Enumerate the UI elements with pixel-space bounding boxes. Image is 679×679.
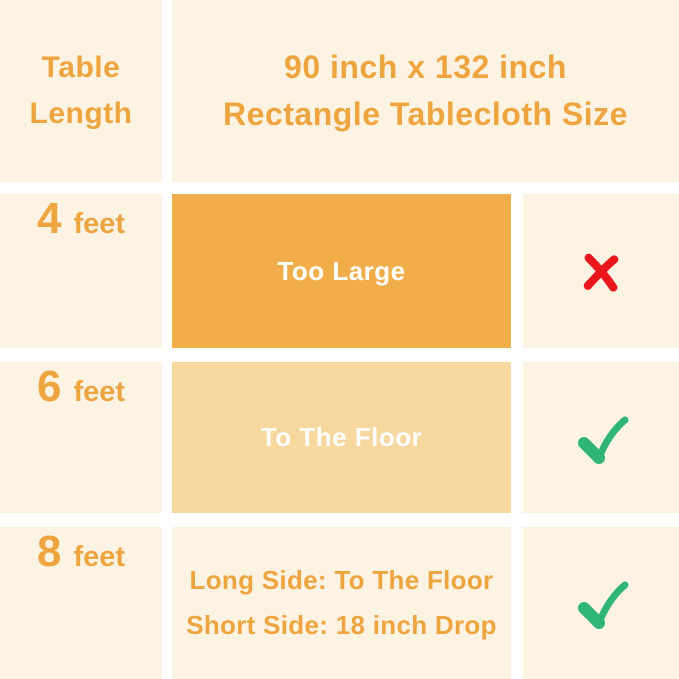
check-mark-icon [570,574,632,632]
row-8ft-fit-line2: Short Side: 18 inch Drop [186,603,497,648]
row-6ft-length-unit: feet [73,376,125,409]
header-table-length: Table Length [0,0,162,182]
row-8ft-fit-cell: Long Side: To The Floor Short Side: 18 i… [172,527,511,679]
row-6ft-fit-text: To The Floor [261,422,423,453]
chart-title-line2: Rectangle Tablecloth Size [223,91,628,138]
header-table-length-line1: Table [42,45,121,91]
x-mark-icon [578,246,624,296]
chart-title-line1: 90 inch x 132 inch [284,44,567,91]
tablecloth-size-chart: Table Length 90 inch x 132 inch Rectangl… [0,0,679,679]
header-table-length-line2: Length [30,91,133,137]
row-6ft-fit-box: To The Floor [172,362,511,513]
row-6ft-verdict [523,362,679,513]
row-8ft-length-unit: feet [73,541,125,574]
row-4ft-length-value: 4 [37,194,61,244]
row-8ft-verdict [523,527,679,679]
row-4ft-verdict [523,194,679,348]
check-mark-icon [570,409,632,467]
row-6ft-label: 6 feet [0,362,162,513]
row-8ft-fit-line1: Long Side: To The Floor [190,558,494,603]
row-4ft-label: 4 feet [0,194,162,348]
row-8ft-length-value: 8 [37,527,61,577]
row-8ft-label: 8 feet [0,527,162,679]
row-4ft-fit-box: Too Large [172,194,511,348]
row-4ft-fit-text: Too Large [277,256,405,287]
chart-title: 90 inch x 132 inch Rectangle Tablecloth … [172,0,679,182]
row-6ft-length-value: 6 [37,362,61,412]
row-4ft-length-unit: feet [73,208,125,241]
